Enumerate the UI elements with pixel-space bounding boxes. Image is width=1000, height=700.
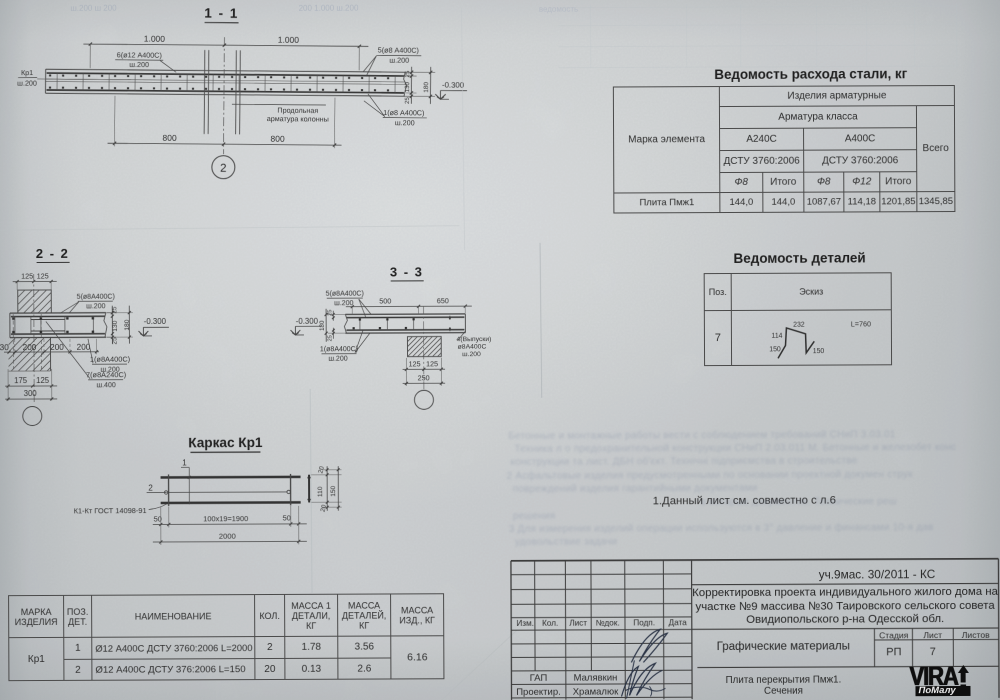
svg-text:125: 125 <box>21 272 33 281</box>
svg-text:5(ø8А400С): 5(ø8А400С) <box>77 294 115 301</box>
svg-text:175: 175 <box>14 376 28 385</box>
svg-text:125: 125 <box>36 376 50 385</box>
svg-text:180: 180 <box>423 82 430 93</box>
svg-text:25: 25 <box>327 310 333 316</box>
svg-text:ø8А400С: ø8А400С <box>458 344 487 351</box>
svg-text:800: 800 <box>270 134 285 144</box>
svg-text:1.000: 1.000 <box>278 35 300 45</box>
svg-text:7(ø8А240С): 7(ø8А240С) <box>86 370 126 379</box>
svg-text:ш.200: ш.200 <box>389 56 409 65</box>
svg-text:130: 130 <box>404 81 411 92</box>
svg-text:50: 50 <box>283 513 291 522</box>
svg-text:150: 150 <box>330 485 337 496</box>
svg-text:Кр1: Кр1 <box>21 68 33 77</box>
svg-text:Каркас Кр1: Каркас Кр1 <box>188 435 263 450</box>
svg-text:800: 800 <box>162 133 177 143</box>
svg-text:арматура колонны: арматура колонны <box>267 114 329 124</box>
svg-text:200 1.000 ш.200: 200 1.000 ш.200 <box>299 4 359 13</box>
svg-text:ш.400: ш.400 <box>97 382 116 389</box>
svg-text:4(Выпуски): 4(Выпуски) <box>456 336 491 343</box>
svg-text:5(ø8 А400С): 5(ø8 А400С) <box>378 45 419 54</box>
svg-text:1(ø8А400С): 1(ø8А400С) <box>320 346 358 353</box>
svg-text:500: 500 <box>379 296 391 305</box>
svg-text:20: 20 <box>317 465 326 474</box>
svg-text:25: 25 <box>405 70 411 77</box>
svg-text:1(ø8 А400С): 1(ø8 А400С) <box>383 108 424 117</box>
svg-text:2: 2 <box>220 163 227 175</box>
svg-text:-0.300: -0.300 <box>442 80 465 89</box>
svg-text:25: 25 <box>405 96 411 103</box>
svg-text:ш.200: ш.200 <box>334 300 353 307</box>
svg-text:25: 25 <box>111 337 118 345</box>
svg-text:ш.200: ш.200 <box>462 351 481 358</box>
svg-text:250: 250 <box>418 373 430 382</box>
svg-text:ш.200: ш.200 <box>17 79 37 88</box>
svg-text:200: 200 <box>77 343 91 352</box>
svg-text:К1-Кт ГОСТ 14098-91: К1-Кт ГОСТ 14098-91 <box>74 506 147 515</box>
svg-text:2: 2 <box>148 484 153 493</box>
svg-text:ш.200: ш.200 <box>86 303 105 310</box>
svg-text:200: 200 <box>50 343 64 352</box>
svg-text:125: 125 <box>409 359 421 368</box>
svg-text:ш.200: ш.200 <box>395 118 415 127</box>
svg-text:ш.200 ш 200: ш.200 ш 200 <box>70 4 117 13</box>
svg-text:125: 125 <box>426 359 438 368</box>
svg-text:-0.300: -0.300 <box>144 317 167 326</box>
svg-text:110: 110 <box>317 486 324 497</box>
svg-text:ш.200: ш.200 <box>328 356 347 363</box>
svg-text:300: 300 <box>24 389 38 398</box>
svg-text:1(ø8А400С): 1(ø8А400С) <box>90 355 130 364</box>
svg-text:-0.300: -0.300 <box>296 317 319 326</box>
svg-text:3 - 3: 3 - 3 <box>390 264 424 279</box>
svg-text:180: 180 <box>319 320 326 331</box>
svg-text:1 - 1: 1 - 1 <box>204 6 239 21</box>
svg-text:ш.200: ш.200 <box>129 60 149 69</box>
svg-text:6(ø12 А400С): 6(ø12 А400С) <box>117 50 162 59</box>
svg-text:1: 1 <box>182 458 187 467</box>
svg-text:2 - 2: 2 - 2 <box>36 246 70 261</box>
svg-text:2000: 2000 <box>219 532 236 541</box>
svg-text:180: 180 <box>124 319 131 330</box>
svg-text:125: 125 <box>37 271 49 280</box>
svg-text:1.000: 1.000 <box>144 34 166 44</box>
svg-text:130: 130 <box>112 320 119 331</box>
svg-text:200: 200 <box>23 343 37 352</box>
svg-text:30: 30 <box>0 343 9 352</box>
svg-text:25: 25 <box>327 335 333 341</box>
svg-text:100х19=1900: 100х19=1900 <box>203 514 248 523</box>
svg-text:20: 20 <box>319 504 328 513</box>
svg-text:5(ø8А400С): 5(ø8А400С) <box>326 291 364 298</box>
svg-text:650: 650 <box>437 296 449 305</box>
svg-text:ведомость: ведомость <box>539 5 578 14</box>
